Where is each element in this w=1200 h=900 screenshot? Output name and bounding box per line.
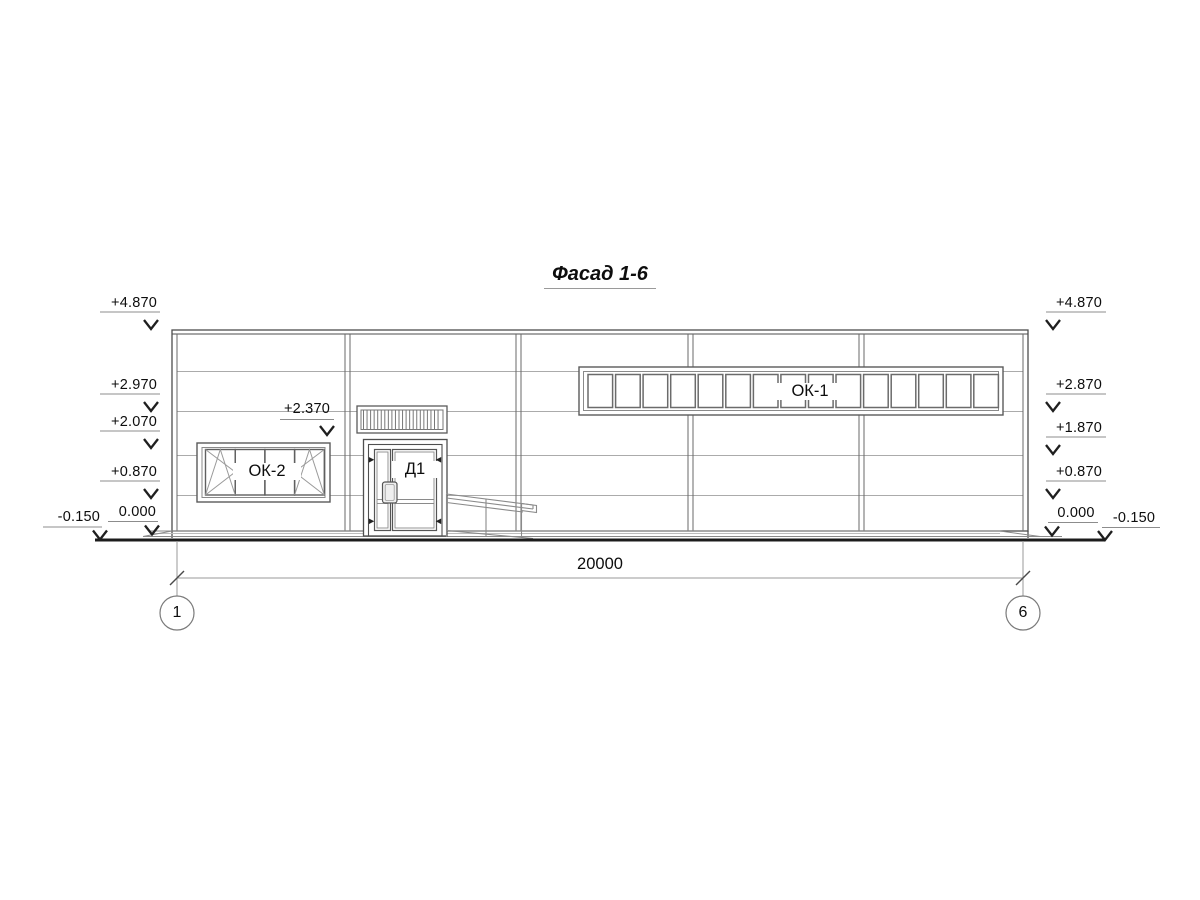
door-d1	[364, 440, 448, 537]
elevation-right-4870: +4.870	[1049, 296, 1109, 311]
louver-grille	[357, 406, 447, 433]
ramp-railing	[447, 494, 537, 539]
facade-drawing-sheet: Фасад 1-6 +4.870 +2.970 +2.070 +0.870 0.…	[0, 0, 1200, 900]
elevation-right-0000: 0.000	[1051, 506, 1101, 521]
elevation-left-2070: +2.070	[95, 415, 157, 430]
drawing-title-wrap: Фасад 1-6	[500, 264, 700, 289]
plinth	[143, 531, 1062, 537]
elevation-louver-2370: +2.370	[279, 402, 335, 417]
elevation-left-0000: 0.000	[96, 505, 156, 520]
elevation-left-0870: +0.870	[95, 465, 157, 480]
elevation-right-minus0150: -0.150	[1106, 511, 1162, 526]
elevation-arrows	[93, 320, 1112, 540]
elevation-left-2970: +2.970	[95, 378, 157, 393]
window-band-label-ok1: ОК-1	[776, 383, 844, 400]
elevation-left-4870: +4.870	[95, 296, 157, 311]
elevation-left-minus0150: -0.150	[38, 510, 100, 525]
axis-number-1: 1	[160, 596, 194, 630]
overall-dimension: 20000	[540, 556, 660, 573]
facade-linework	[0, 0, 1200, 900]
building-outline	[172, 330, 1028, 538]
axis-number-6: 6	[1006, 596, 1040, 630]
elevation-right-0870: +0.870	[1049, 465, 1109, 480]
door-label-d1: Д1	[392, 461, 438, 478]
elevation-right-1870: +1.870	[1049, 421, 1109, 436]
elevation-right-2870: +2.870	[1049, 378, 1109, 393]
door-handle	[383, 482, 398, 503]
window-label-ok2: ОК-2	[233, 463, 301, 480]
drawing-title: Фасад 1-6	[544, 264, 656, 289]
